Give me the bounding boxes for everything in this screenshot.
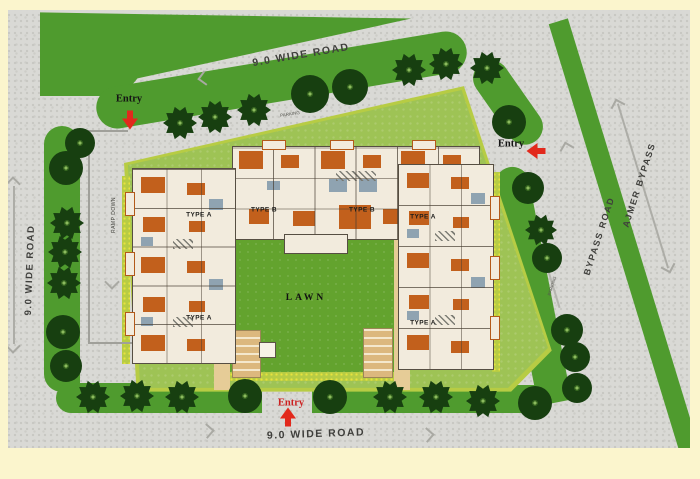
unit-type-label: TYPE A xyxy=(410,214,436,221)
entrance-landing-left xyxy=(259,342,276,358)
tree-icon xyxy=(492,105,526,139)
road-label-bottom: 9.0 WIDE ROAD xyxy=(267,426,366,441)
parking-label-top: PARKING xyxy=(280,110,300,118)
ramp-edge-line xyxy=(88,130,90,344)
unit-type-label: TYPE B xyxy=(251,207,277,214)
unit-type-label: TYPE A xyxy=(186,315,212,322)
balcony xyxy=(490,316,500,340)
tree-icon xyxy=(46,315,80,349)
unit-type-label: TYPE A xyxy=(410,320,436,327)
road-direction-chevron-icon xyxy=(8,176,21,192)
entry-arrow-icon xyxy=(280,408,296,427)
tree-icon xyxy=(551,314,583,346)
tree-icon xyxy=(332,69,368,105)
tree-icon xyxy=(512,172,544,204)
tree-icon xyxy=(518,386,552,420)
road-direction-chevron-icon xyxy=(661,259,676,274)
tree-icon xyxy=(532,243,562,273)
ramp-edge-line xyxy=(88,130,128,132)
road-direction-chevron-icon xyxy=(611,99,626,114)
site-plan-frame: 9.0 WIDE ROAD 9.0 WIDE ROAD 9.0 WIDE ROA… xyxy=(8,10,690,448)
unit-type-label: TYPE B xyxy=(349,207,375,214)
tree-icon xyxy=(291,75,329,113)
balcony xyxy=(125,312,135,336)
road-direction-arrow xyxy=(13,186,15,344)
road-direction-chevron-icon xyxy=(419,427,435,443)
entry-label-northwest: Entry xyxy=(116,94,142,105)
site-plan-map: 9.0 WIDE ROAD 9.0 WIDE ROAD 9.0 WIDE ROA… xyxy=(8,10,690,448)
tree-icon xyxy=(562,373,592,403)
lawn-label: LAWN xyxy=(286,293,327,303)
tree-icon xyxy=(50,350,82,382)
tree-icon xyxy=(228,379,262,413)
balcony xyxy=(330,140,354,150)
balcony xyxy=(490,256,500,280)
building-wing-west xyxy=(132,168,236,364)
building-wing-east xyxy=(398,164,494,370)
road-direction-chevron-icon xyxy=(559,141,574,156)
entry-label-east: Entry xyxy=(498,139,524,150)
tree-icon xyxy=(313,380,347,414)
balcony xyxy=(125,252,135,276)
stair-block-right xyxy=(363,328,393,378)
ramp-edge-line xyxy=(88,342,132,344)
entry-arrow-icon xyxy=(122,111,138,130)
stair-block-left xyxy=(232,330,261,378)
entry-arrow-icon xyxy=(527,143,546,159)
road-direction-chevron-icon xyxy=(8,338,21,354)
balcony xyxy=(412,140,436,150)
road-direction-chevron-icon xyxy=(199,423,215,439)
site-plan-page: { "plan": { "roads": [ {"id": "top", "te… xyxy=(0,0,700,479)
balcony xyxy=(490,196,500,220)
road-direction-chevron-icon xyxy=(104,274,120,290)
building-center-projection xyxy=(284,234,348,254)
unit-type-label: TYPE A xyxy=(186,212,212,219)
ramp-down-label: RAMP DOWN xyxy=(111,197,117,233)
balcony xyxy=(125,192,135,216)
road-label-bypass: BYPASS ROAD xyxy=(582,196,617,277)
road-label-left: 9.0 WIDE ROAD xyxy=(23,224,37,315)
tree-icon xyxy=(49,151,83,185)
balcony xyxy=(262,140,286,150)
tree-icon xyxy=(560,342,590,372)
